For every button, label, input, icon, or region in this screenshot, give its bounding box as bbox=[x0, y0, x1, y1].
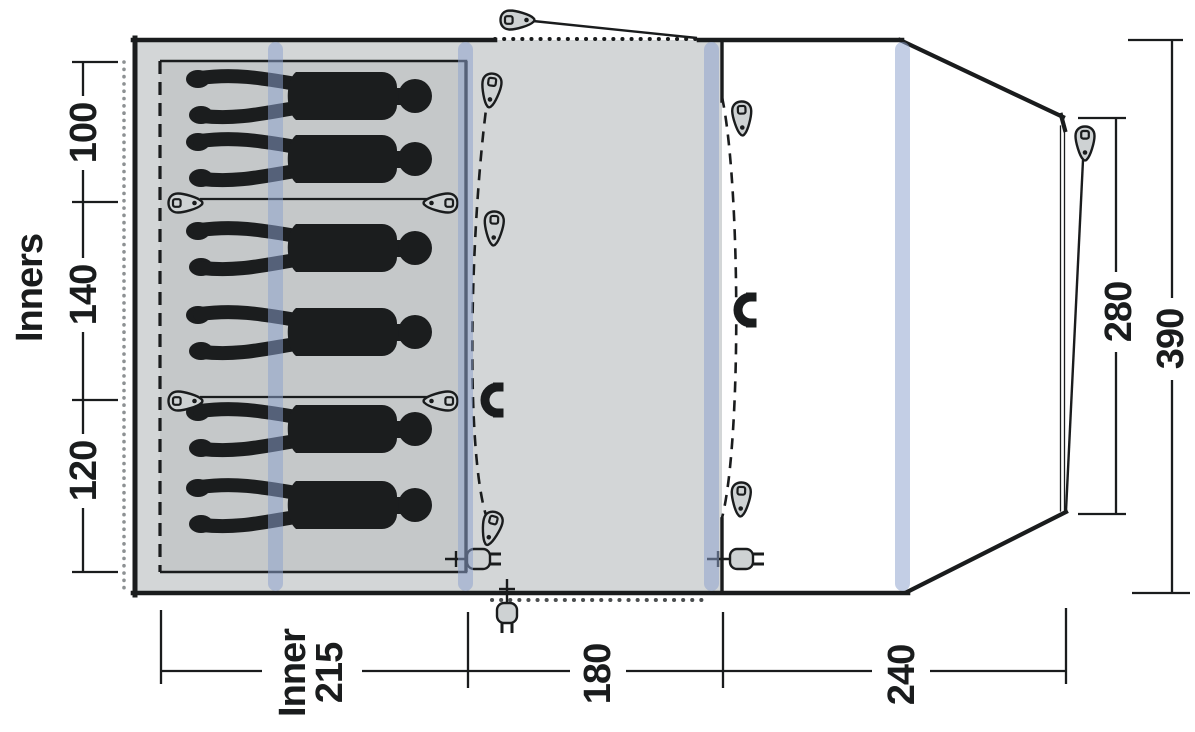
corner-guy-line bbox=[1066, 160, 1083, 511]
top-pull-line bbox=[533, 21, 697, 38]
dimension-front-width: 280 bbox=[1099, 242, 1139, 382]
porch-area bbox=[722, 40, 1065, 592]
zipper-pull-icon bbox=[501, 11, 535, 30]
inner-depth-value: 215 bbox=[312, 643, 349, 703]
dimension-inner-compartment-3: 120 bbox=[64, 401, 104, 541]
dimension-living-depth: 180 bbox=[578, 604, 618, 732]
dimension-porch-depth: 240 bbox=[882, 605, 922, 732]
tent-floorplan-diagram: Inners 100 140 120 Inner 215 180 240 280… bbox=[0, 0, 1195, 732]
pole-band bbox=[704, 42, 719, 591]
dimension-total-width: 390 bbox=[1151, 269, 1191, 409]
guy-peg-icon bbox=[1076, 127, 1095, 161]
pole-band bbox=[458, 42, 473, 591]
pole-band bbox=[268, 42, 283, 591]
dimension-inner-compartment-2: 140 bbox=[64, 225, 104, 365]
inners-label: Inners bbox=[8, 208, 52, 368]
pole-band bbox=[895, 42, 910, 591]
dimension-inner-compartment-1: 100 bbox=[64, 63, 104, 203]
dimension-inner-depth: Inner 215 bbox=[274, 598, 350, 732]
inner-depth-label: Inner bbox=[275, 629, 312, 717]
